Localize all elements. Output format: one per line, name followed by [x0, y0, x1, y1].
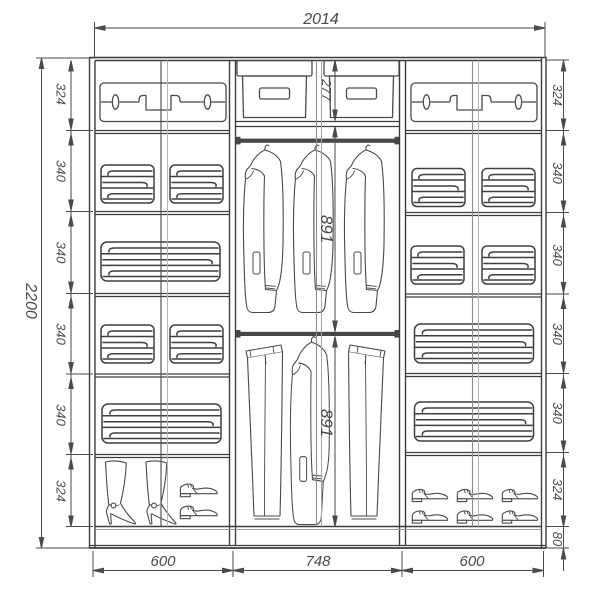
svg-text:2200: 2200: [22, 282, 39, 319]
svg-text:340: 340: [54, 323, 69, 345]
svg-text:324: 324: [550, 479, 565, 501]
svg-text:324: 324: [54, 480, 69, 502]
svg-text:340: 340: [54, 242, 69, 264]
svg-text:891: 891: [317, 409, 336, 437]
svg-text:340: 340: [550, 402, 565, 424]
svg-text:80: 80: [550, 532, 565, 547]
svg-text:600: 600: [150, 553, 176, 570]
svg-text:340: 340: [550, 244, 565, 266]
svg-text:340: 340: [550, 162, 565, 184]
svg-text:600: 600: [459, 553, 485, 570]
svg-text:340: 340: [54, 404, 69, 426]
svg-text:324: 324: [550, 84, 565, 106]
svg-text:324: 324: [54, 83, 69, 105]
svg-text:340: 340: [550, 323, 565, 345]
svg-text:277: 277: [319, 78, 334, 101]
svg-text:2014: 2014: [302, 11, 339, 28]
svg-text:340: 340: [54, 160, 69, 182]
svg-text:891: 891: [317, 215, 336, 243]
svg-text:748: 748: [305, 553, 331, 570]
